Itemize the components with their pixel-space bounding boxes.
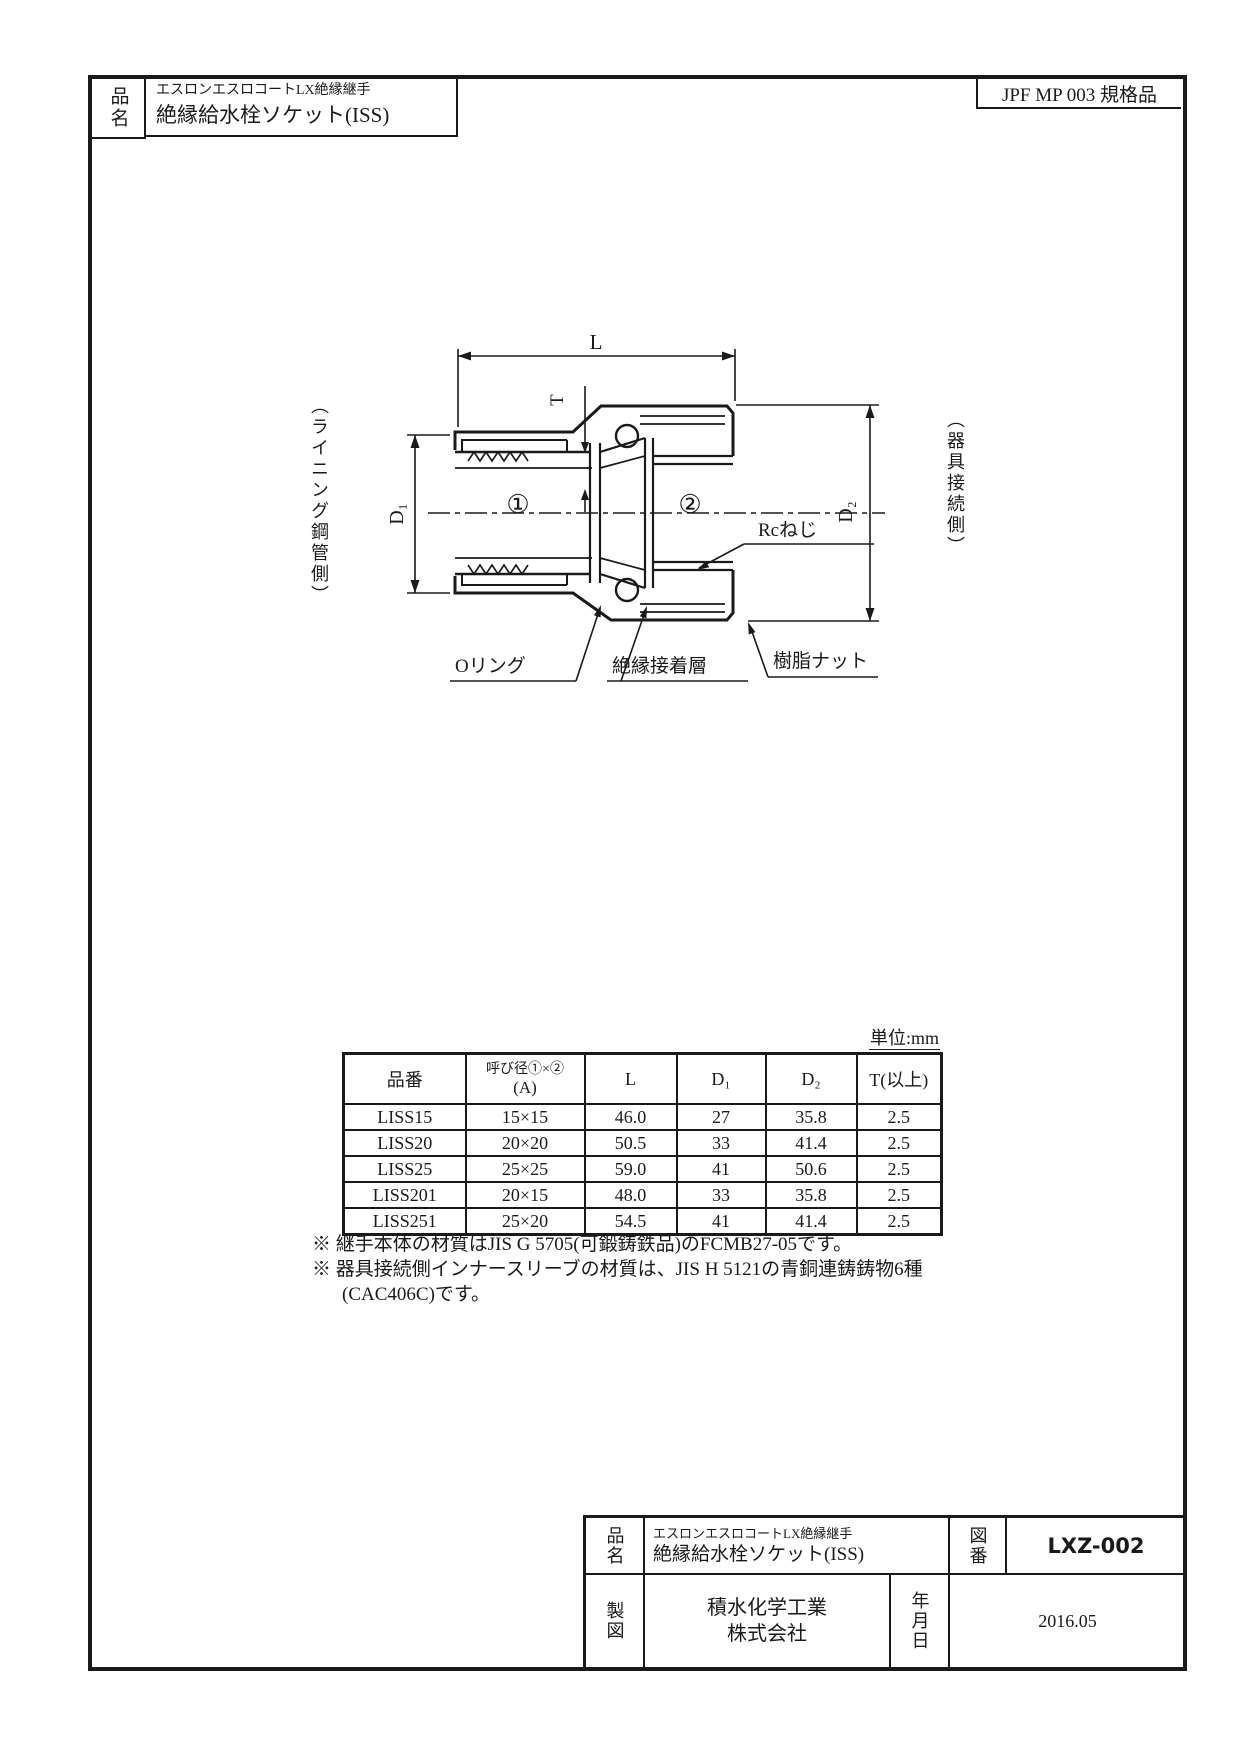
bore-mark-2: ②: [678, 490, 701, 519]
cell-L: 59.0: [585, 1156, 677, 1182]
cell-T: 2.5: [857, 1130, 942, 1156]
product-name-field: エスロンエスロコートLX絶縁継手 絶縁給水栓ソケット(ISS): [146, 79, 458, 137]
cell-D1: 27: [677, 1104, 766, 1130]
cell-L: 54.5: [585, 1208, 677, 1235]
note-line: (CAC406C)です。: [312, 1282, 923, 1307]
cell-D1: 41: [677, 1156, 766, 1182]
cell-D2: 41.4: [766, 1208, 857, 1235]
cell-L: 50.5: [585, 1130, 677, 1156]
product-name-text: 絶縁給水栓ソケット(ISS): [156, 101, 456, 129]
company-name: 積水化学工業 株式会社: [645, 1575, 891, 1667]
cell-diameter: 20×20: [466, 1130, 585, 1156]
table-row: LISS201 20×15 48.0 33 35.8 2.5: [344, 1182, 942, 1208]
cell-D2: 35.8: [766, 1104, 857, 1130]
drawing-no-label: 図番: [950, 1518, 1007, 1573]
svg-text:Oリング: Oリング: [455, 655, 526, 677]
cell-T: 2.5: [857, 1208, 942, 1235]
cell-part-no: LISS251: [344, 1208, 466, 1235]
svg-text:D₂: D₂: [835, 501, 857, 522]
cell-part-no: LISS25: [344, 1156, 466, 1182]
cell-diameter: 15×15: [466, 1104, 585, 1130]
note-line: ※ 器具接続側インナースリーブの材質は、JIS H 5121の青銅連鋳鋳物6種: [312, 1257, 923, 1282]
col-header-diameter: 呼び径①×② (A): [466, 1054, 585, 1105]
svg-text:樹脂ナット: 樹脂ナット: [773, 650, 868, 672]
col-header-D2: D₂: [766, 1054, 857, 1105]
table-row: LISS251 25×20 54.5 41 41.4 2.5: [344, 1208, 942, 1235]
svg-text:D₁: D₁: [386, 503, 408, 524]
cell-D2: 50.6: [766, 1156, 857, 1182]
cell-part-no: LISS20: [344, 1130, 466, 1156]
leader-adhesive-layer: 絶縁接着層: [607, 606, 748, 681]
standard-badge: JPF MP 003 規格品: [976, 79, 1181, 109]
cell-D1: 33: [677, 1130, 766, 1156]
cell-diameter: 20×15: [466, 1182, 585, 1208]
drafting-label: 製図: [586, 1575, 645, 1667]
leader-o-ring: Oリング: [450, 605, 601, 681]
svg-text:T: T: [547, 394, 568, 406]
date-label: 年月日: [891, 1575, 950, 1667]
drawing-sheet: 品名 エスロンエスロコートLX絶縁継手 絶縁給水栓ソケット(ISS) JPF M…: [0, 0, 1240, 1755]
cell-diameter: 25×20: [466, 1208, 585, 1235]
cell-D1: 33: [677, 1182, 766, 1208]
col-header-diameter-line2: (A): [467, 1078, 584, 1097]
cell-L: 46.0: [585, 1104, 677, 1130]
table-row: LISS20 20×20 50.5 33 41.4 2.5: [344, 1130, 942, 1156]
table-row: LISS25 25×25 59.0 41 50.6 2.5: [344, 1156, 942, 1182]
cell-L: 48.0: [585, 1182, 677, 1208]
svg-text:L: L: [590, 335, 603, 354]
company-line1: 積水化学工業: [707, 1595, 827, 1621]
product-name-text: 絶縁給水栓ソケット(ISS): [653, 1542, 864, 1567]
col-header-part-no: 品番: [344, 1054, 466, 1105]
cell-T: 2.5: [857, 1156, 942, 1182]
col-header-L: L: [585, 1054, 677, 1105]
col-header-D1: D₁: [677, 1054, 766, 1105]
product-series-text: エスロンエスロコートLX絶縁継手: [156, 81, 456, 101]
title-block-bottom: 品名 エスロンエスロコートLX絶縁継手 絶縁給水栓ソケット(ISS) 図番 LX…: [583, 1515, 1185, 1667]
title-block-row-drafting: 製図 積水化学工業 株式会社 年月日 2016.05: [586, 1575, 1185, 1667]
title-block-top: 品名 エスロンエスロコートLX絶縁継手 絶縁給水栓ソケット(ISS): [92, 79, 458, 139]
svg-text:②: ②: [678, 490, 701, 519]
material-notes: ※ 継手本体の材質はJIS G 5705(可鍛鋳鉄品)のFCMB27-05です。…: [312, 1232, 923, 1307]
cell-part-no: LISS201: [344, 1182, 466, 1208]
company-line2: 株式会社: [727, 1621, 807, 1647]
cell-T: 2.5: [857, 1104, 942, 1130]
name-field: エスロンエスロコートLX絶縁継手 絶縁給水栓ソケット(ISS): [645, 1518, 950, 1573]
cell-D2: 41.4: [766, 1130, 857, 1156]
col-header-diameter-line1: 呼び径①×②: [467, 1061, 584, 1078]
bore-mark-1: ①: [506, 490, 529, 519]
drawing-no-value: LXZ-002: [1007, 1518, 1185, 1573]
cell-T: 2.5: [857, 1182, 942, 1208]
dimension-L: L: [458, 335, 735, 427]
leader-resin-nut: 樹脂ナット: [748, 622, 878, 677]
dimension-table: 品番 呼び径①×② (A) L D₁ D₂ T(以上) LISS15 15×15…: [342, 1052, 943, 1236]
product-name-field-label: 品名: [92, 79, 146, 139]
date-value: 2016.05: [950, 1575, 1185, 1667]
cell-D1: 41: [677, 1208, 766, 1235]
sheet-border-frame: [88, 75, 1187, 1671]
table-row: LISS15 15×15 46.0 27 35.8 2.5: [344, 1104, 942, 1130]
svg-text:①: ①: [506, 490, 529, 519]
title-block-row-name: 品名 エスロンエスロコートLX絶縁継手 絶縁給水栓ソケット(ISS) 図番 LX…: [586, 1518, 1185, 1575]
col-header-T: T(以上): [857, 1054, 942, 1105]
fitting-cross-section-drawing: ① ② L D₁ D₂: [300, 335, 980, 705]
cell-diameter: 25×25: [466, 1156, 585, 1182]
cell-part-no: LISS15: [344, 1104, 466, 1130]
name-field-label: 品名: [586, 1518, 645, 1573]
svg-text:Rcねじ: Rcねじ: [758, 520, 817, 541]
note-line: ※ 継手本体の材質はJIS G 5705(可鍛鋳鉄品)のFCMB27-05です。: [312, 1232, 923, 1257]
dimension-D1: D₁: [386, 435, 450, 593]
table-header-row: 品番 呼び径①×② (A) L D₁ D₂ T(以上): [344, 1054, 942, 1105]
unit-note: 単位:mm: [740, 1024, 940, 1050]
cell-D2: 35.8: [766, 1182, 857, 1208]
product-series-text: エスロンエスロコートLX絶縁継手: [653, 1525, 852, 1542]
